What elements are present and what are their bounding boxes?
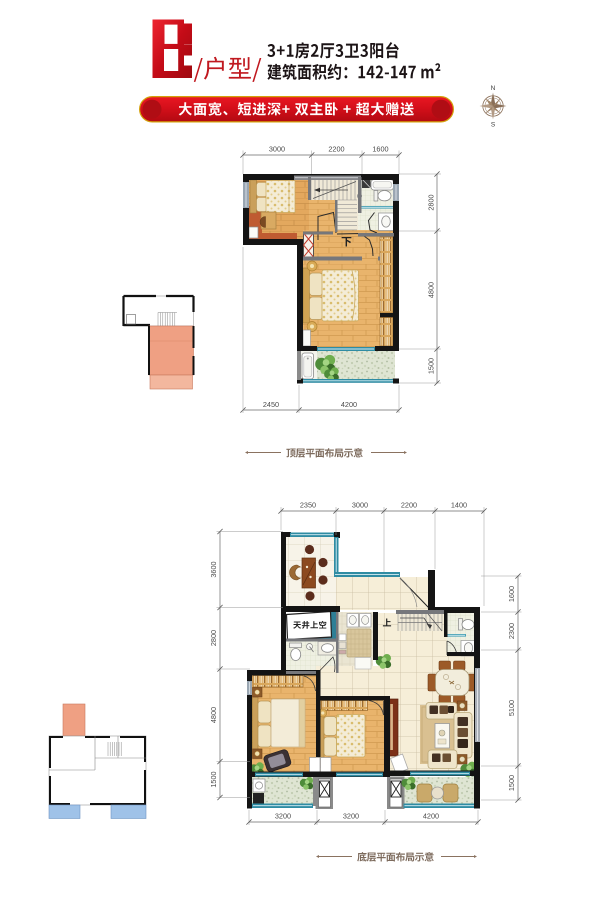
svg-text:1600: 1600	[372, 145, 388, 154]
svg-text:3200: 3200	[343, 812, 359, 821]
svg-text:1500: 1500	[507, 775, 516, 791]
svg-text:4200: 4200	[341, 400, 357, 409]
svg-text:3000: 3000	[269, 145, 285, 154]
svg-text:4200: 4200	[423, 812, 439, 821]
svg-text:5100: 5100	[507, 700, 516, 716]
svg-text:1600: 1600	[507, 586, 516, 602]
svg-text:2350: 2350	[300, 501, 316, 510]
svg-text:2450: 2450	[263, 400, 279, 409]
svg-text:2200: 2200	[328, 145, 344, 154]
svg-text:1500: 1500	[209, 771, 218, 787]
svg-text:N: N	[491, 85, 496, 92]
svg-text:1500: 1500	[427, 358, 436, 374]
svg-text:3200: 3200	[275, 812, 291, 821]
svg-text:4800: 4800	[427, 282, 436, 298]
svg-text:4800: 4800	[209, 707, 218, 723]
svg-text:2800: 2800	[427, 194, 436, 210]
svg-text:3000: 3000	[352, 501, 368, 510]
svg-text:2800: 2800	[209, 630, 218, 646]
svg-text:1400: 1400	[451, 501, 467, 510]
svg-text:3600: 3600	[209, 561, 218, 577]
svg-text:2200: 2200	[401, 501, 417, 510]
svg-text:S: S	[491, 122, 496, 129]
svg-text:2300: 2300	[507, 623, 516, 639]
